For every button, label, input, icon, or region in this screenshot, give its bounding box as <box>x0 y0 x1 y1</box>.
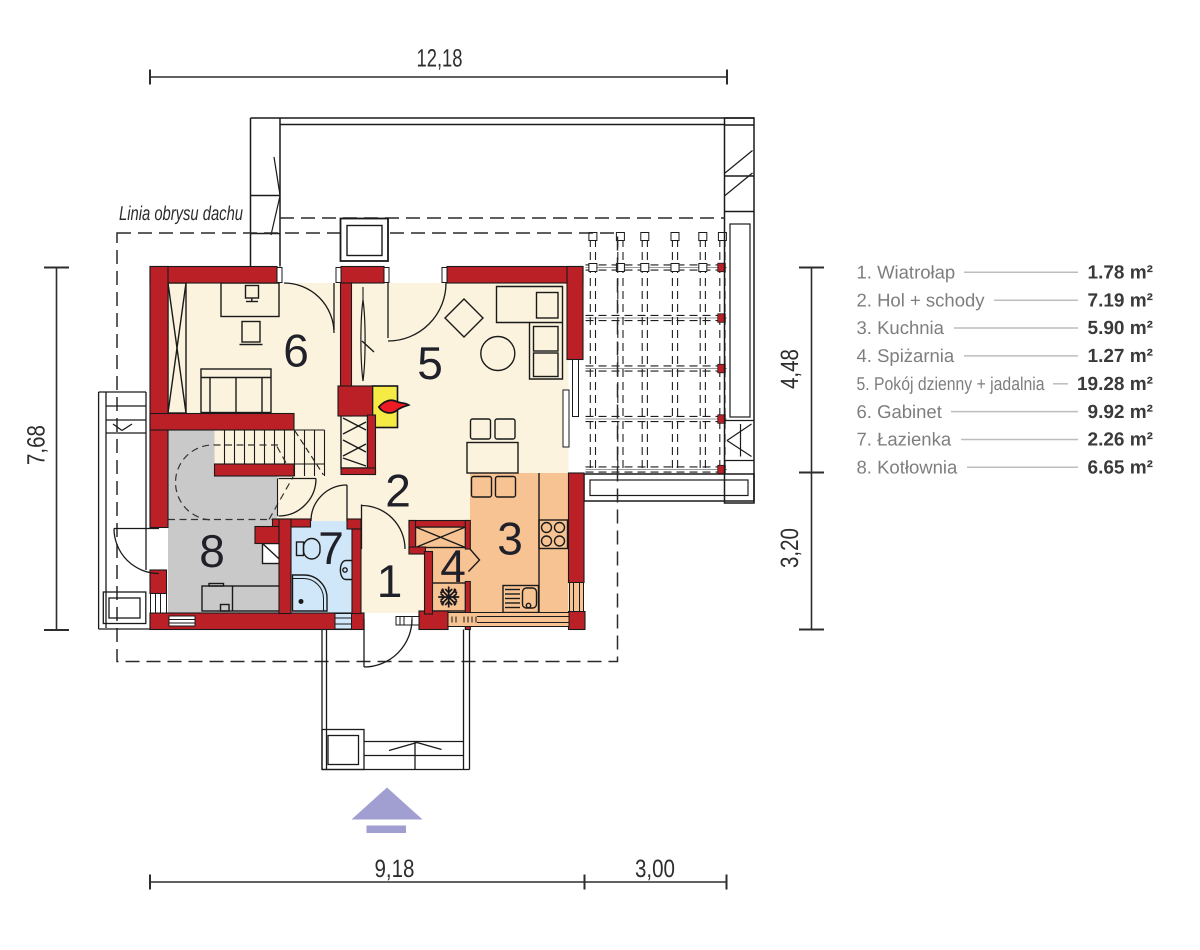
svg-text:7.19 m²: 7.19 m² <box>1088 290 1153 311</box>
svg-text:3. Kuchnia: 3. Kuchnia <box>857 317 945 338</box>
svg-text:9,18: 9,18 <box>375 855 415 883</box>
svg-text:4: 4 <box>440 540 466 592</box>
svg-text:7. Łazienka: 7. Łazienka <box>857 429 952 450</box>
svg-text:9.92 m²: 9.92 m² <box>1088 402 1153 423</box>
svg-text:6: 6 <box>283 325 309 377</box>
svg-text:19.28 m²: 19.28 m² <box>1077 374 1153 395</box>
svg-text:7: 7 <box>318 522 344 574</box>
svg-text:1.78 m²: 1.78 m² <box>1088 263 1153 284</box>
svg-text:2. Hol + schody: 2. Hol + schody <box>857 289 986 310</box>
svg-text:Linia obrysu dachu: Linia obrysu dachu <box>119 203 243 225</box>
svg-text:12,18: 12,18 <box>417 45 463 73</box>
svg-text:5. Pokój dzienny + jadalnia: 5. Pokój dzienny + jadalnia <box>857 373 1046 394</box>
svg-text:3,20: 3,20 <box>776 528 804 568</box>
svg-text:8. Kotłownia: 8. Kotłownia <box>857 457 958 478</box>
svg-text:5.90 m²: 5.90 m² <box>1088 318 1153 339</box>
svg-text:3: 3 <box>497 513 523 565</box>
svg-text:3,00: 3,00 <box>635 855 675 883</box>
svg-text:8: 8 <box>199 525 225 577</box>
svg-text:7,68: 7,68 <box>23 425 51 465</box>
svg-text:2.26 m²: 2.26 m² <box>1088 430 1153 451</box>
svg-text:1: 1 <box>377 555 403 607</box>
svg-text:2: 2 <box>385 465 411 517</box>
svg-text:6. Gabinet: 6. Gabinet <box>857 401 942 422</box>
svg-text:4,48: 4,48 <box>776 349 804 389</box>
svg-text:4. Spiżarnia: 4. Spiżarnia <box>857 345 955 366</box>
svg-text:1.27 m²: 1.27 m² <box>1088 346 1153 367</box>
svg-text:1. Wiatrołap: 1. Wiatrołap <box>857 262 956 283</box>
svg-text:6.65 m²: 6.65 m² <box>1088 458 1153 479</box>
svg-text:5: 5 <box>417 337 443 389</box>
